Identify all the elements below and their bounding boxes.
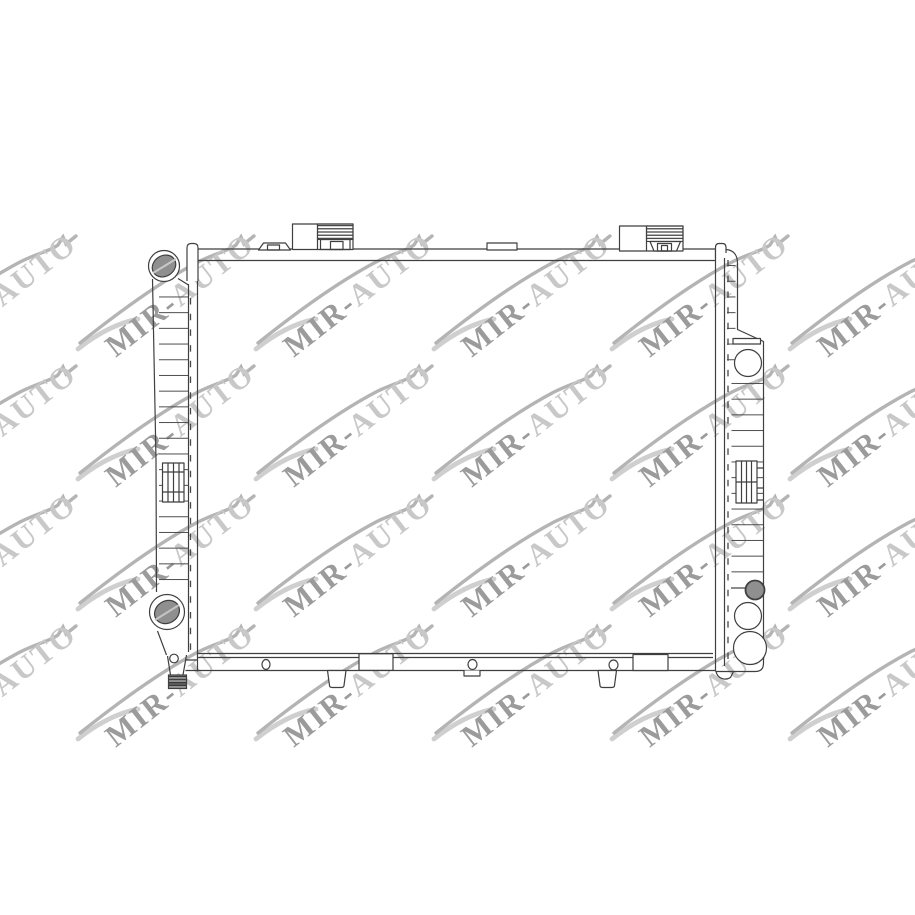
watermark-tile: MIR-AUTO [434, 356, 617, 494]
bottom-clamp-plate-2 [633, 655, 668, 671]
watermark-tile: MIR-AUTO [434, 616, 617, 754]
watermark-text: MIR-AUTO [276, 486, 439, 624]
watermark-tile: MIR-AUTO [612, 616, 795, 754]
watermark-text: MIR-AUTO [810, 226, 915, 364]
watermark-text: MIR-AUTO [632, 356, 795, 494]
top-fittings [259, 224, 684, 251]
filler-neck-bar [733, 339, 761, 345]
watermark-tile: MIR-AUTO [790, 356, 915, 494]
watermark-text: MIR-AUTO [0, 616, 83, 754]
top-left-corner-tab [187, 244, 198, 282]
bottom-clamp-plate-1 [359, 654, 393, 671]
mounting-foot-2 [598, 671, 617, 688]
top-right-corner-tab [716, 244, 727, 259]
watermark-text: MIR-AUTO [810, 616, 915, 754]
watermark-text: MIR-AUTO [0, 356, 83, 494]
radiator-illustration: MIR-AUTO MIR-AUTO MIR-AUTO MIR-AUTO MIR-… [0, 0, 915, 915]
watermark-tile: MIR-AUTO [612, 486, 795, 624]
watermark-tile: MIR-AUTO [0, 486, 83, 624]
bottom-notch [464, 671, 480, 677]
watermark-text: MIR-AUTO [276, 616, 439, 754]
watermark-tile: MIR-AUTO [434, 486, 617, 624]
watermark-text: MIR-AUTO [454, 616, 617, 754]
lower-port-1 [735, 603, 762, 630]
drain-plug [170, 654, 179, 663]
retaining-clip [259, 243, 291, 250]
bottom-hole-2 [468, 660, 477, 670]
watermark-tile: MIR-AUTO [0, 356, 83, 494]
watermark-tile: MIR-AUTO [256, 486, 439, 624]
watermark-tile: MIR-AUTO [0, 616, 83, 754]
product-image: MIR-AUTO MIR-AUTO MIR-AUTO MIR-AUTO MIR-… [0, 0, 915, 915]
watermark-tile: MIR-AUTO [790, 616, 915, 754]
watermark-tile: MIR-AUTO [256, 616, 439, 754]
watermark-text: MIR-AUTO [810, 356, 915, 494]
sensor-boss-icon [746, 581, 765, 600]
watermark-text: MIR-AUTO [0, 486, 83, 624]
watermark-text: MIR-AUTO [454, 486, 617, 624]
bottom-hole-3 [609, 660, 618, 670]
watermark-text: MIR-AUTO [454, 356, 617, 494]
watermark-text: MIR-AUTO [632, 486, 795, 624]
watermark-tile: MIR-AUTO [790, 486, 915, 624]
top-mounting-tab [487, 243, 517, 250]
lower-port-2 [734, 632, 767, 665]
watermark-text: MIR-AUTO [632, 616, 795, 754]
top-bracket-left-hatch [318, 224, 354, 240]
watermark-tile: MIR-AUTO [612, 356, 795, 494]
watermark-tile: MIR-AUTO [0, 226, 83, 364]
watermark-text: MIR-AUTO [810, 486, 915, 624]
left-side-fins [159, 291, 189, 586]
watermark-tile: MIR-AUTO [434, 226, 617, 364]
watermark-tile: MIR-AUTO [256, 356, 439, 494]
filler-port [735, 350, 762, 377]
watermark-text: MIR-AUTO [454, 226, 617, 364]
watermark-layer: MIR-AUTO MIR-AUTO MIR-AUTO MIR-AUTO MIR-… [0, 226, 915, 754]
bottom-hole-1 [262, 660, 270, 670]
watermark-text: MIR-AUTO [276, 356, 439, 494]
left-mounting-foot [169, 675, 187, 689]
mounting-foot-1 [328, 671, 347, 688]
watermark-text: MIR-AUTO [0, 226, 83, 364]
watermark-tile: MIR-AUTO [790, 226, 915, 364]
top-bracket-right-hatch [647, 226, 684, 242]
